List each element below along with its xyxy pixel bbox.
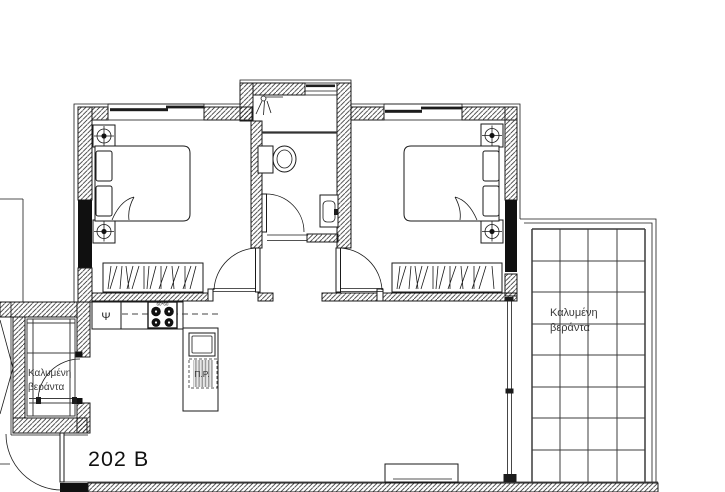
washing-machine: Π.Ρ. xyxy=(189,359,217,388)
veranda-left-label-line2: βεράντα xyxy=(28,381,64,393)
stove: 60*60 xyxy=(148,302,177,328)
sofa xyxy=(385,464,458,482)
toilet xyxy=(258,146,296,173)
wall-column xyxy=(505,200,517,272)
door-leaf xyxy=(336,248,341,292)
wardrobe xyxy=(392,263,502,292)
washbasin xyxy=(320,195,338,227)
floor-plan-drawing: Ψ 60*60 Π.Ρ. xyxy=(0,0,725,492)
pillow xyxy=(96,151,112,181)
door-leaf xyxy=(256,248,261,292)
fridge-label: Ψ xyxy=(101,311,110,323)
pillow xyxy=(483,151,499,181)
washing-machine-label: Π.Ρ. xyxy=(194,369,209,379)
unit-label: 202 B xyxy=(88,447,149,471)
wall-column xyxy=(60,483,88,492)
floor-plan-page: Ψ 60*60 Π.Ρ. xyxy=(0,0,725,492)
door-leaf xyxy=(262,194,267,232)
door-jamb xyxy=(76,352,83,358)
entrance-door-leaf xyxy=(60,433,64,482)
wardrobe xyxy=(103,263,203,292)
veranda-left-label-line1: Καλυμένη xyxy=(28,367,71,379)
pillow xyxy=(483,186,499,216)
stove-size-label: 60*60 xyxy=(156,302,168,307)
pillow xyxy=(96,186,112,216)
kitchen-sink xyxy=(189,333,215,356)
veranda-right-label-line2: βεράντα xyxy=(550,322,591,334)
veranda-right-label-line1: Καλυμένη xyxy=(550,307,598,319)
wall-column xyxy=(78,200,92,268)
